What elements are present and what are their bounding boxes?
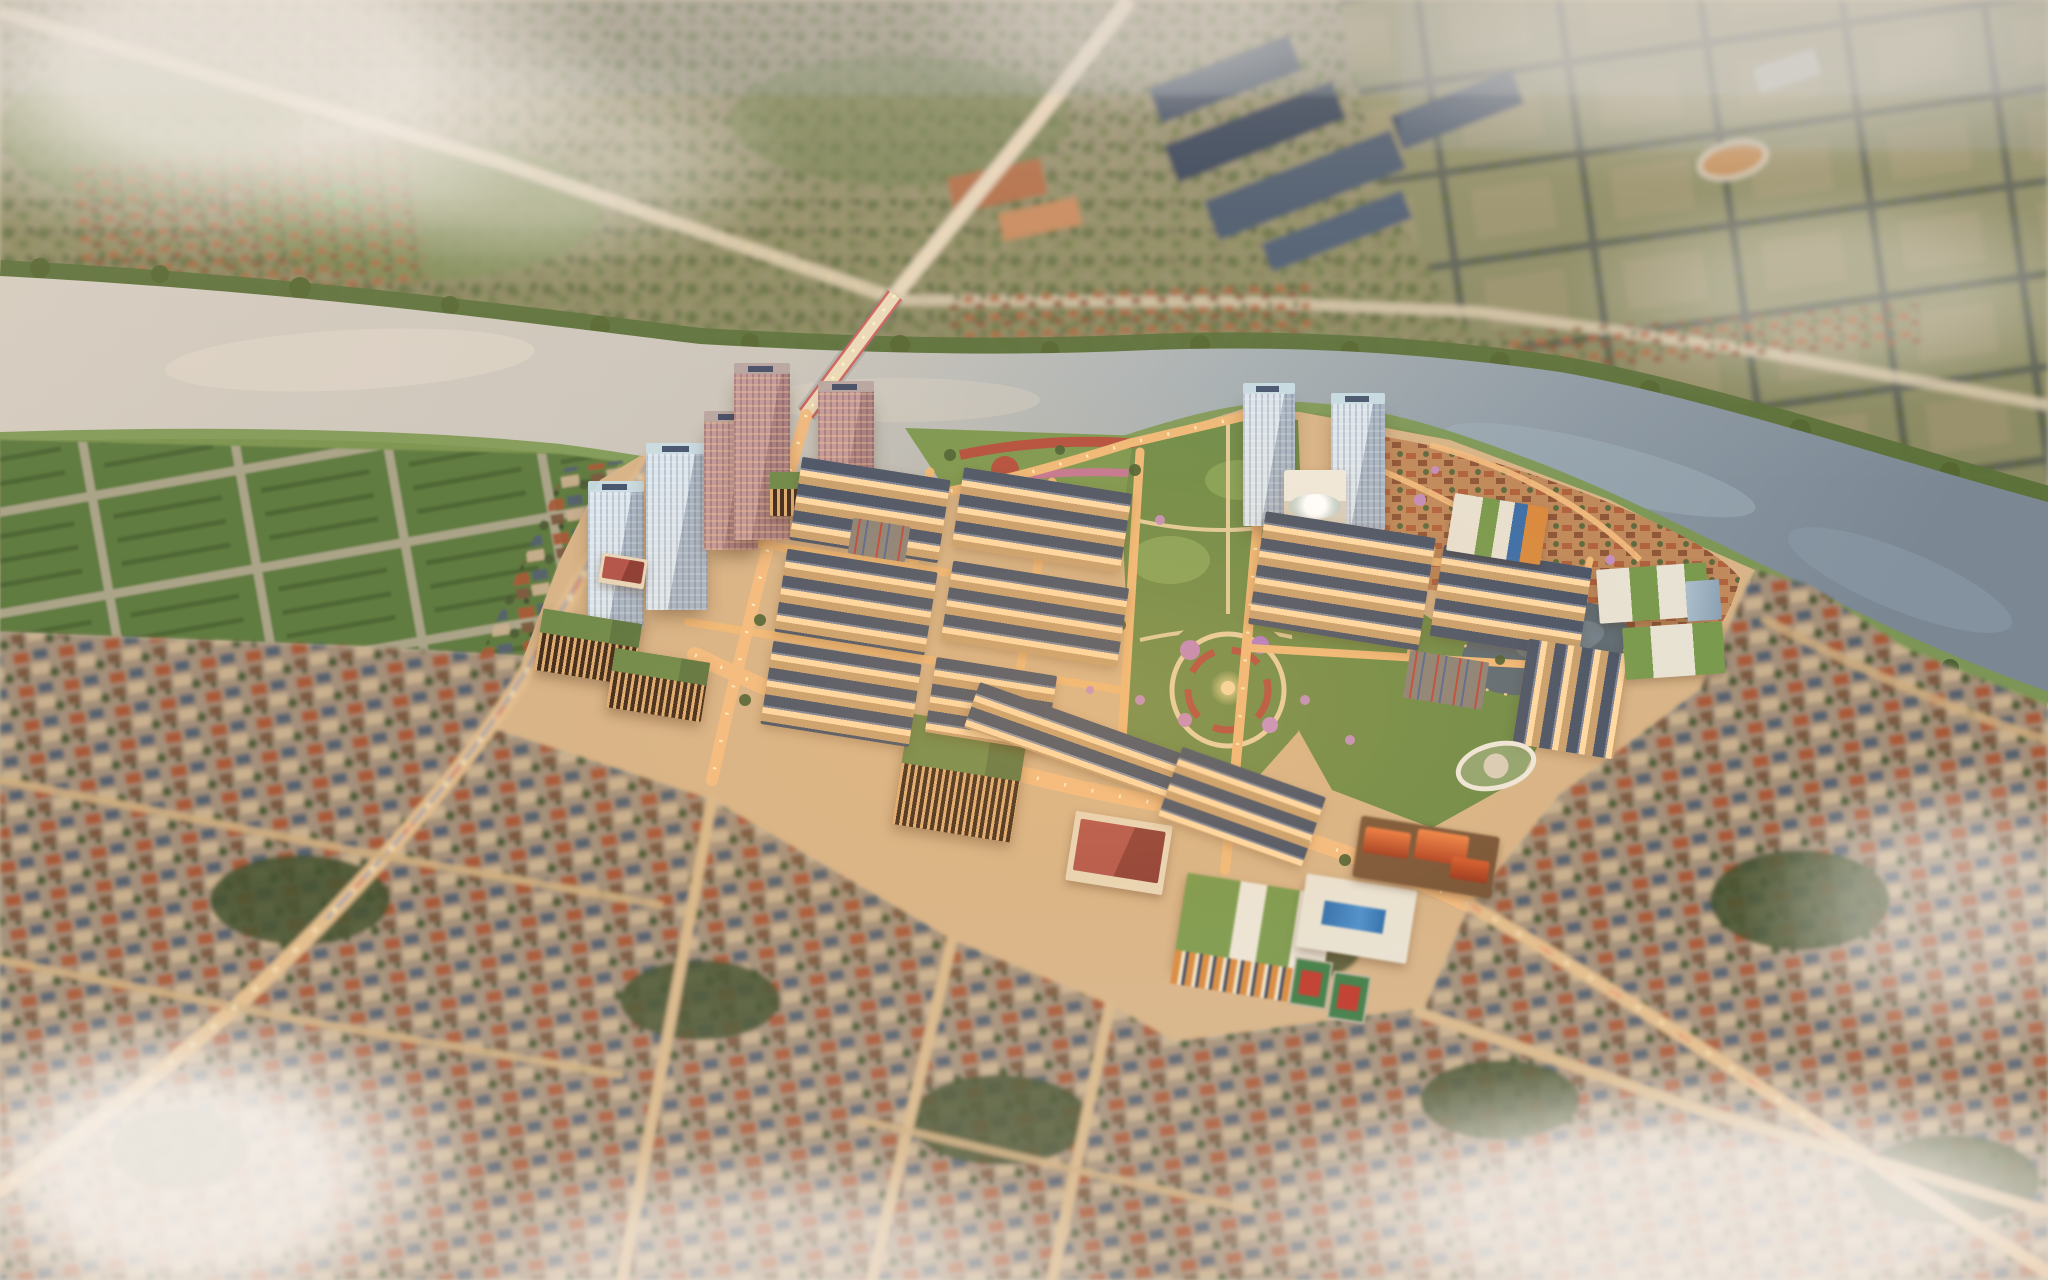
- aerial-masterplan-render: [0, 0, 2048, 1280]
- left-fields: [0, 440, 625, 670]
- temple-roof: [1449, 856, 1490, 884]
- villa-district-office: [1596, 560, 1739, 687]
- office-wing: [1622, 621, 1725, 680]
- basketball-court: [1288, 957, 1333, 1010]
- se-circle-garden: [1154, 616, 1302, 764]
- tower-glass-b: [646, 452, 708, 610]
- temple-roof: [1362, 826, 1412, 859]
- basketball-court: [1326, 971, 1371, 1024]
- glass-atrium: [1685, 579, 1722, 621]
- community-hall: [1065, 811, 1173, 895]
